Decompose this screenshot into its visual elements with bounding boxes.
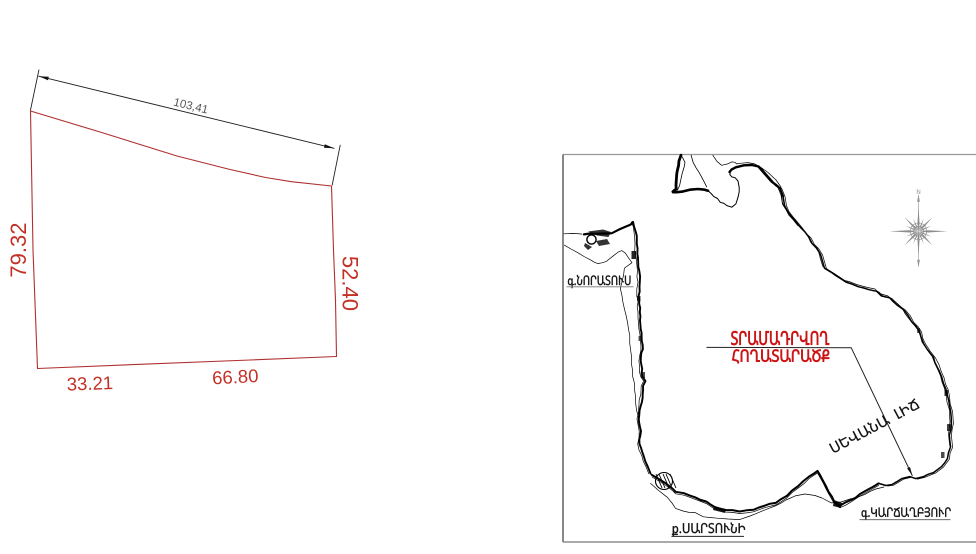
svg-text:79.32: 79.32 [6, 223, 31, 278]
svg-text:33.21: 33.21 [66, 372, 113, 395]
svg-text:66.80: 66.80 [212, 365, 259, 388]
svg-text:N: N [916, 190, 920, 196]
svg-text:52.40: 52.40 [337, 256, 362, 311]
